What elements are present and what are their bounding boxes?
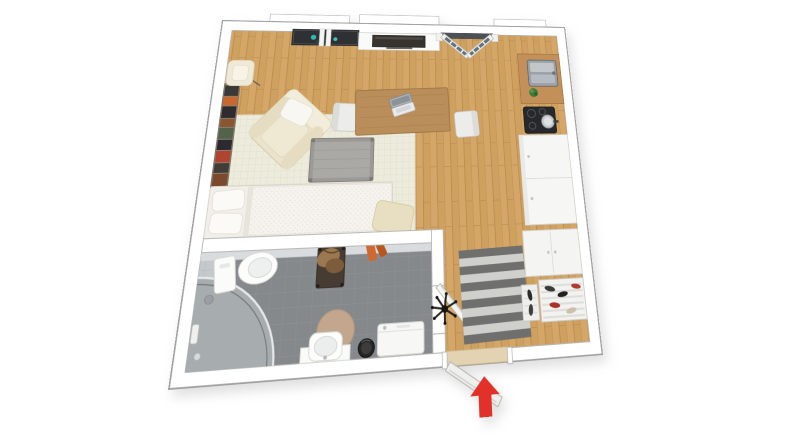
bed (203, 182, 392, 239)
doormat (459, 245, 532, 344)
bathroom-right-wall-lower (433, 333, 446, 353)
tv-unit (358, 33, 439, 51)
window-mullion (326, 29, 332, 46)
bathroom-right-wall-upper (431, 229, 444, 286)
door-jamb-right (507, 347, 513, 364)
shoe-rack-small (521, 284, 540, 321)
kitchen-counter (517, 54, 564, 104)
door-jamb-left (442, 352, 447, 369)
window-mullion (319, 29, 325, 46)
washing-machine (377, 321, 424, 356)
floor-plan-shadow-wrapper (0, 0, 800, 442)
floor-plan-canvas (168, 20, 603, 390)
cooktop (523, 107, 560, 134)
apartment-floor-plan (168, 20, 603, 390)
pillow (212, 189, 245, 212)
window (291, 28, 359, 46)
entrance (442, 346, 516, 421)
shoe-rack (538, 278, 587, 323)
pillow (208, 213, 244, 234)
entrance-door (445, 362, 502, 407)
tall-cabinet (519, 135, 577, 225)
wardrobe (523, 229, 583, 277)
coffee-table (308, 138, 374, 182)
